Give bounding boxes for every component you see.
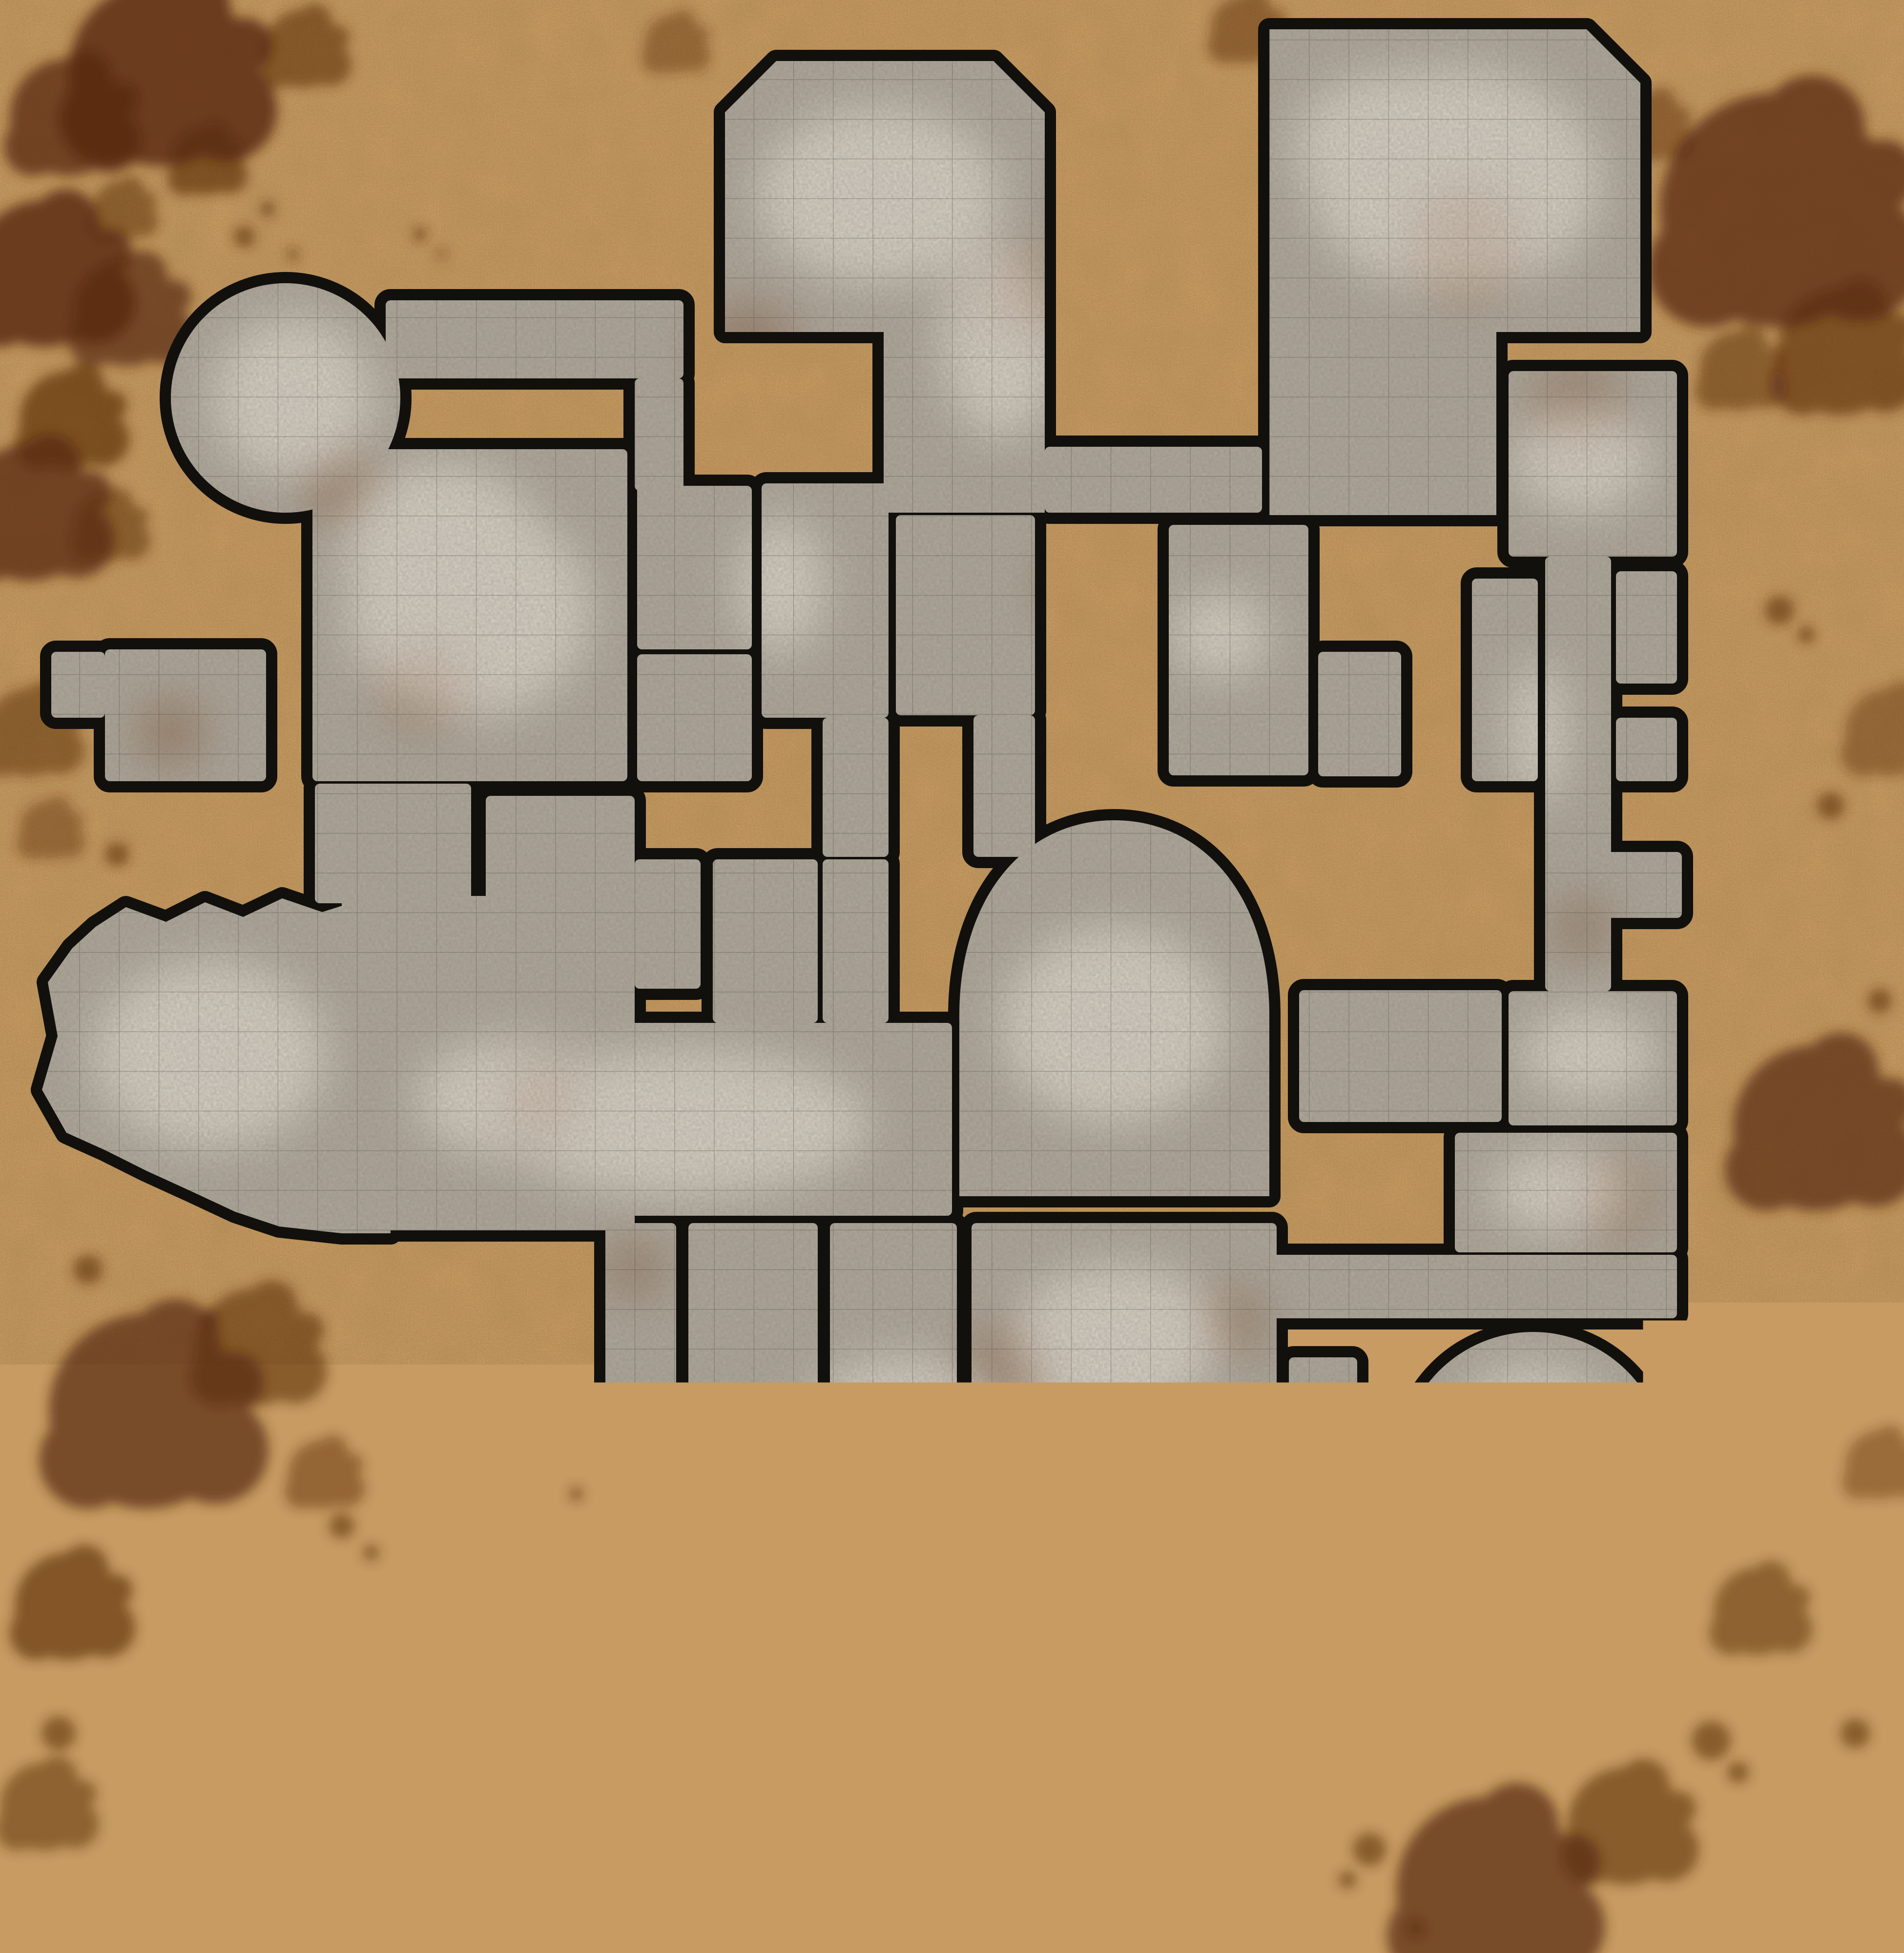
dungeon-map-page	[0, 0, 1904, 1953]
dungeon-battle-map	[0, 0, 1904, 1953]
dungeon-structure	[0, 0, 1904, 1953]
